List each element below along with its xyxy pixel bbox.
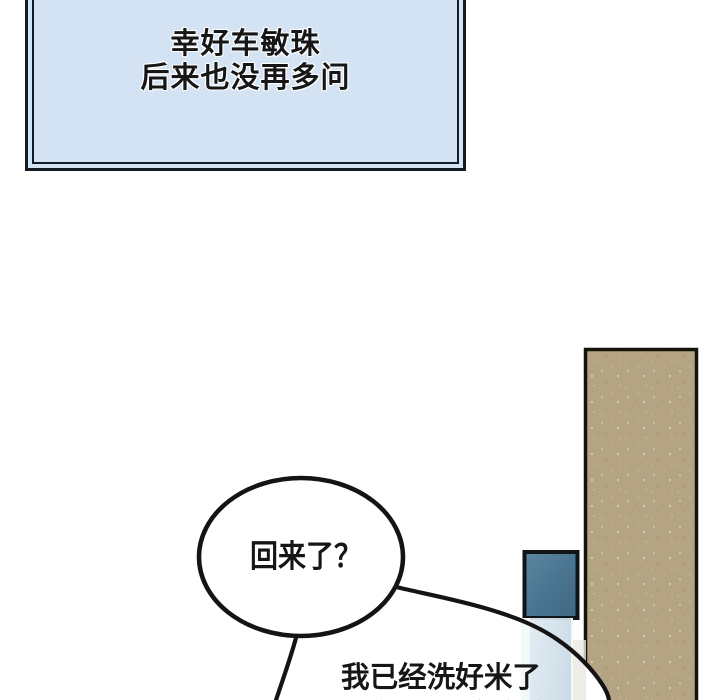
scene-artwork: 回来了？ 我已经洗好米了 米饭马上就能好 (0, 0, 720, 700)
door-panel (586, 350, 697, 700)
bubble-2-text: 我已经洗好米了 (341, 660, 541, 694)
bubble-1-text: 回来了？ (250, 539, 362, 575)
window-rect (525, 552, 578, 618)
comic-panel: 幸好车敏珠 后来也没再多问 (0, 0, 720, 700)
door-shadow-band (573, 640, 586, 700)
